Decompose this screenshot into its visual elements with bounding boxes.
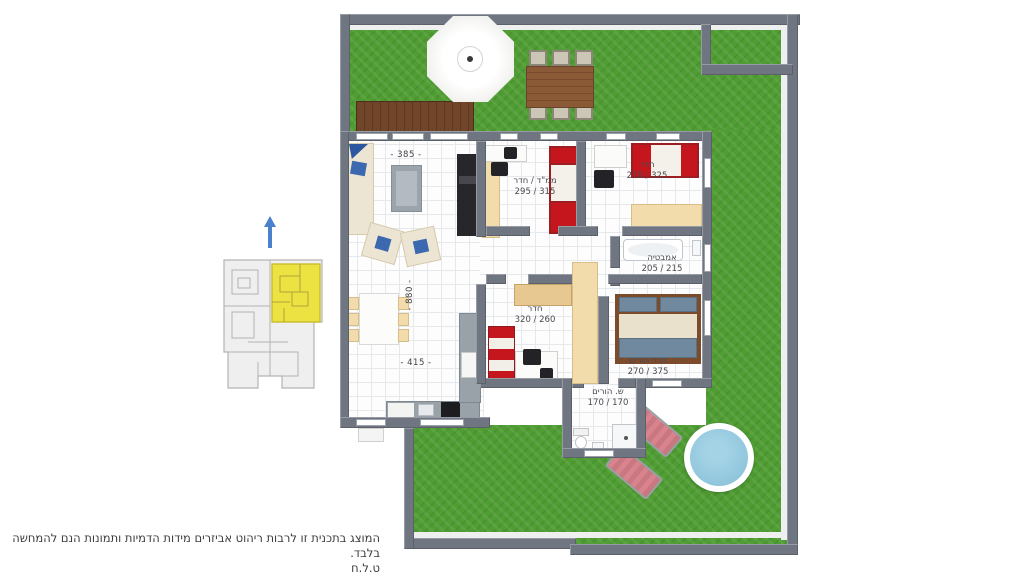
room-name: אמבטיה <box>626 253 698 264</box>
room-dims: 260 / 320 <box>498 315 572 326</box>
outdoor-dining-table <box>526 66 594 108</box>
desk-chair <box>491 162 508 176</box>
room-name: ממ"ד / חדר <box>496 176 574 187</box>
coffee-table-top <box>396 171 417 206</box>
interior-wall <box>476 141 486 237</box>
outdoor-chair <box>552 50 570 66</box>
desk-computer <box>504 147 517 159</box>
room-label-bathroom: אמבטיה 215 / 205 <box>626 253 698 275</box>
north-arrow-icon <box>262 216 278 252</box>
outdoor-chair <box>575 50 593 66</box>
sofa-pillow <box>350 161 367 176</box>
interior-wall <box>622 226 702 236</box>
interior-wall <box>476 284 486 384</box>
room-label-master-shower: ש. הורים 170 / 170 <box>574 387 642 409</box>
bed-sheet <box>619 314 697 338</box>
window <box>392 133 424 140</box>
kitchen-cabinet <box>388 403 414 418</box>
minimap <box>218 256 330 394</box>
disclaimer-line2: ט.ל.ח <box>8 561 380 576</box>
room-dims: 170 / 170 <box>574 398 642 409</box>
window <box>356 133 388 140</box>
dining-table <box>359 293 399 345</box>
armchair-pillow <box>413 239 429 255</box>
bunk-bed <box>488 326 515 384</box>
entry-step <box>358 428 384 442</box>
outer-wall-top <box>340 14 800 25</box>
room-label-master-bedroom: חדר הורים 375 / 270 <box>604 356 692 378</box>
window <box>584 450 614 457</box>
shower-drain <box>624 436 628 440</box>
window <box>420 419 464 426</box>
shower-stall <box>612 424 638 450</box>
disclaimer-text: המוצג בתכנית זו לרבות ריהוט אביזרים מידו… <box>8 531 380 576</box>
shower-room-wall <box>562 378 572 458</box>
outer-wall-left-bottom <box>404 428 414 549</box>
wardrobe <box>514 284 572 306</box>
room-dims: 315 / 295 <box>496 187 574 198</box>
room-label-bedroom2: חדר 325 / 270 <box>612 160 682 182</box>
wood-deck <box>356 101 474 133</box>
window <box>500 133 518 140</box>
interior-wall <box>486 274 506 284</box>
armchair-pillow <box>374 235 391 251</box>
umbrella-pole <box>467 56 473 62</box>
dimension-label-385: - 385 - <box>380 150 432 160</box>
window <box>430 133 468 140</box>
desk-chair <box>523 349 541 365</box>
armchair <box>400 226 442 268</box>
wardrobe-tall <box>572 262 598 384</box>
dimension-label-880: - 880 - <box>405 269 415 321</box>
wall-ledge <box>348 25 792 30</box>
window <box>356 419 386 426</box>
desk-chair <box>594 170 614 188</box>
interior-wall <box>486 226 530 236</box>
room-dims: 375 / 270 <box>604 367 692 378</box>
outer-wall-left-top <box>340 14 350 141</box>
room-dims: 325 / 270 <box>612 171 682 182</box>
room-name: חדר <box>498 304 572 315</box>
room-name: חדר <box>612 160 682 171</box>
outer-wall-bottom <box>570 544 798 555</box>
toilet-tank <box>573 428 589 436</box>
dimension-label-415: - 415 - <box>388 358 444 368</box>
room-name: ש. הורים <box>574 387 642 398</box>
window <box>704 244 711 272</box>
outer-wall-right <box>787 14 798 555</box>
house-wall-bottom <box>480 378 566 388</box>
room-name: חדר הורים <box>604 356 692 367</box>
room-label-mamad: ממ"ד / חדר 315 / 295 <box>496 176 574 198</box>
window <box>656 133 680 140</box>
tv-screen <box>459 176 477 184</box>
window <box>704 300 711 336</box>
house-wall-left <box>340 131 349 426</box>
bed-pillow <box>660 297 697 312</box>
interior-wall <box>558 226 598 236</box>
room-label-bedroom3: חדר 260 / 320 <box>498 304 572 326</box>
interior-wall <box>608 274 702 284</box>
interior-wall <box>576 141 586 234</box>
dining-chair <box>398 329 409 342</box>
bed-pillow <box>619 297 657 312</box>
window <box>606 133 626 140</box>
minimap-highlighted-unit[interactable] <box>272 264 320 322</box>
dining-chair <box>348 313 359 326</box>
outdoor-chair <box>529 50 547 66</box>
kitchen-sink <box>418 404 434 416</box>
window <box>540 133 558 140</box>
bed-pillow <box>681 145 697 176</box>
round-pool <box>684 423 754 492</box>
garden-pocket-wall <box>701 64 793 75</box>
outer-wall-bottom <box>404 538 576 549</box>
disclaimer-line1: המוצג בתכנית זו לרבות ריהוט אביזרים מידו… <box>8 531 380 561</box>
dining-chair <box>348 297 359 310</box>
bed-blanket <box>619 338 697 358</box>
dining-chair <box>348 329 359 342</box>
window <box>704 158 711 188</box>
floorplan-canvas: ממ"ד / חדר 315 / 295 חדר 325 / 270 אמבטי… <box>0 0 1024 576</box>
room-dims: 215 / 205 <box>626 264 698 275</box>
coffee-table <box>391 165 422 212</box>
interior-wall <box>610 236 620 268</box>
double-bed <box>615 294 701 364</box>
window <box>652 380 682 387</box>
